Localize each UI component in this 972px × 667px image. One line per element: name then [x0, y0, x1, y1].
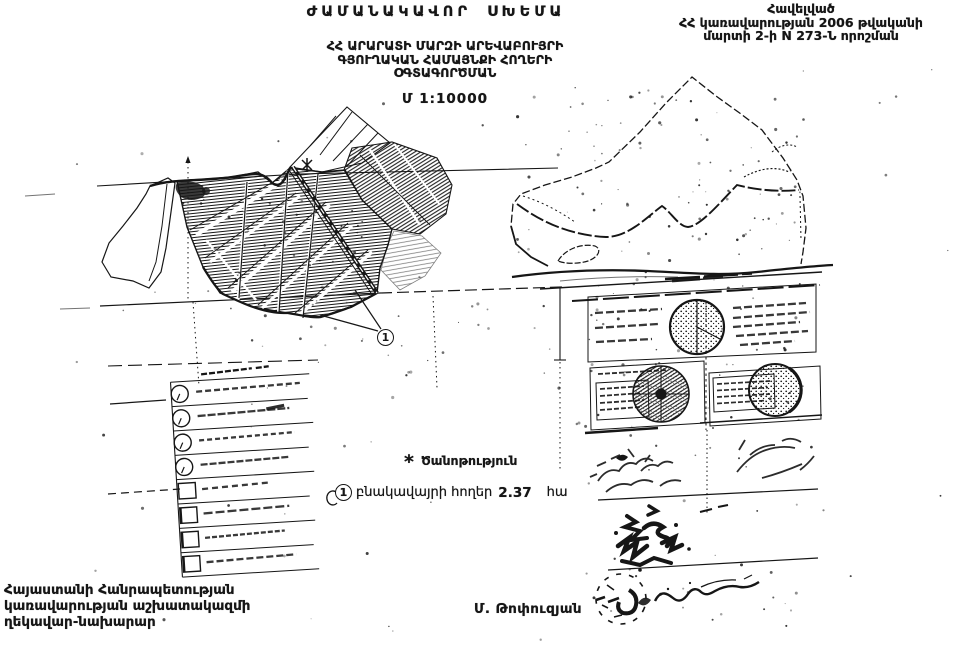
annex-reference: Հավելված ՀՀ կառավարության 2006 թվականի մ… [640, 2, 962, 43]
officials-line-1: Հայաստանի Հանրապետության [4, 582, 250, 598]
note-number-circle-icon: 1 [335, 484, 352, 501]
right-map [511, 77, 833, 281]
signature-scribble [596, 575, 759, 605]
annex-line-2: ՀՀ կառավարության 2006 թվականի [640, 16, 962, 30]
terrain-scribbles [590, 439, 814, 492]
map-marker-1: 1 [377, 329, 394, 346]
note-item-text: բնակավայրի հողեր [356, 485, 492, 500]
note-item-unit: հա [547, 485, 568, 500]
annex-line-3: մարտի 2-ի N 273-Ն որոշման [640, 29, 962, 43]
legend-table [170, 364, 322, 577]
legend-stray-lines [108, 360, 337, 505]
scan-noise [76, 69, 949, 641]
note-item: 1 բնակավայրի հողեր 2.37 հա [335, 484, 568, 501]
subtitle-line-1: ՀՀ ԱՐԱՐԱՏԻ ՄԱՐԶԻ ԱՐԵՎԱԲՈՒՅՐԻ [259, 39, 631, 53]
officials-block: Հայաստանի Հանրապետության կառավարության ա… [4, 582, 250, 630]
signatory-name: Մ. Թոփուզյան [474, 601, 582, 617]
note-header-label: Ծանոթություն [421, 453, 517, 468]
left-map [102, 107, 452, 331]
scanned-scheme-page: Հավելված ՀՀ կառավարության 2006 թվականի մ… [0, 0, 972, 667]
land-balance-diagrams [540, 272, 822, 572]
subtitle-line-2: ԳՅՈՒՂԱԿԱՆ ՀԱՄԱՅՆՔԻ ՀՈՂԵՐԻ [259, 53, 631, 67]
note-header: * Ծանոթություն [404, 453, 517, 468]
dense-vegetation-blob [618, 506, 682, 565]
asterisk-icon: * [404, 457, 414, 467]
note-item-value: 2.37 [498, 485, 531, 501]
page-subtitle: ՀՀ ԱՐԱՐԱՏԻ ՄԱՐԶԻ ԱՐԵՎԱԲՈՒՅՐԻ ԳՅՈՒՂԱԿԱՆ Հ… [259, 39, 631, 80]
subtitle-line-3: ՕԳՏԱԳՈՐԾՄԱՆ [259, 66, 631, 80]
officials-line-3: ղեկավար-նախարար [4, 614, 250, 630]
annex-line-1: Հավելված [640, 2, 962, 16]
map-scale-label: Մ 1:10000 [259, 91, 631, 107]
page-title: ԺԱՄԱՆԱԿԱՎՈՐ ՍԽԵՄԱ [250, 4, 622, 20]
officials-line-2: կառավարության աշխատակազմի [4, 598, 250, 614]
